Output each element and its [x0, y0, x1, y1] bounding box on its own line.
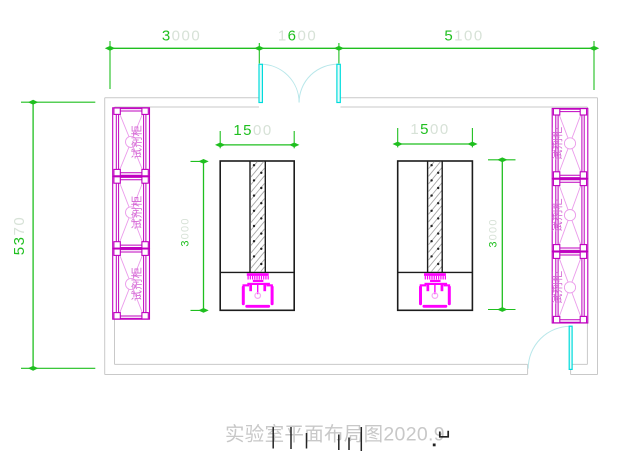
svg-text:1500: 1500 — [233, 122, 272, 139]
svg-text:3000: 3000 — [180, 217, 192, 246]
svg-text:试剂柜: 试剂柜 — [130, 125, 144, 159]
svg-text:试剂柜: 试剂柜 — [550, 198, 564, 232]
svg-text:5100: 5100 — [444, 28, 483, 45]
svg-text:实验室平面布局图2020.9: 实验室平面布局图2020.9 — [225, 424, 445, 446]
svg-text:5370: 5370 — [11, 216, 28, 255]
svg-text:3000: 3000 — [162, 28, 201, 45]
svg-text:试剂柜: 试剂柜 — [550, 126, 564, 160]
svg-text:3000: 3000 — [488, 218, 500, 247]
svg-text:1600: 1600 — [278, 28, 317, 45]
svg-text:试剂柜: 试剂柜 — [550, 270, 564, 304]
svg-text:1500: 1500 — [410, 121, 449, 138]
svg-text:试剂柜: 试剂柜 — [130, 195, 144, 229]
svg-text:试剂柜: 试剂柜 — [130, 267, 144, 301]
